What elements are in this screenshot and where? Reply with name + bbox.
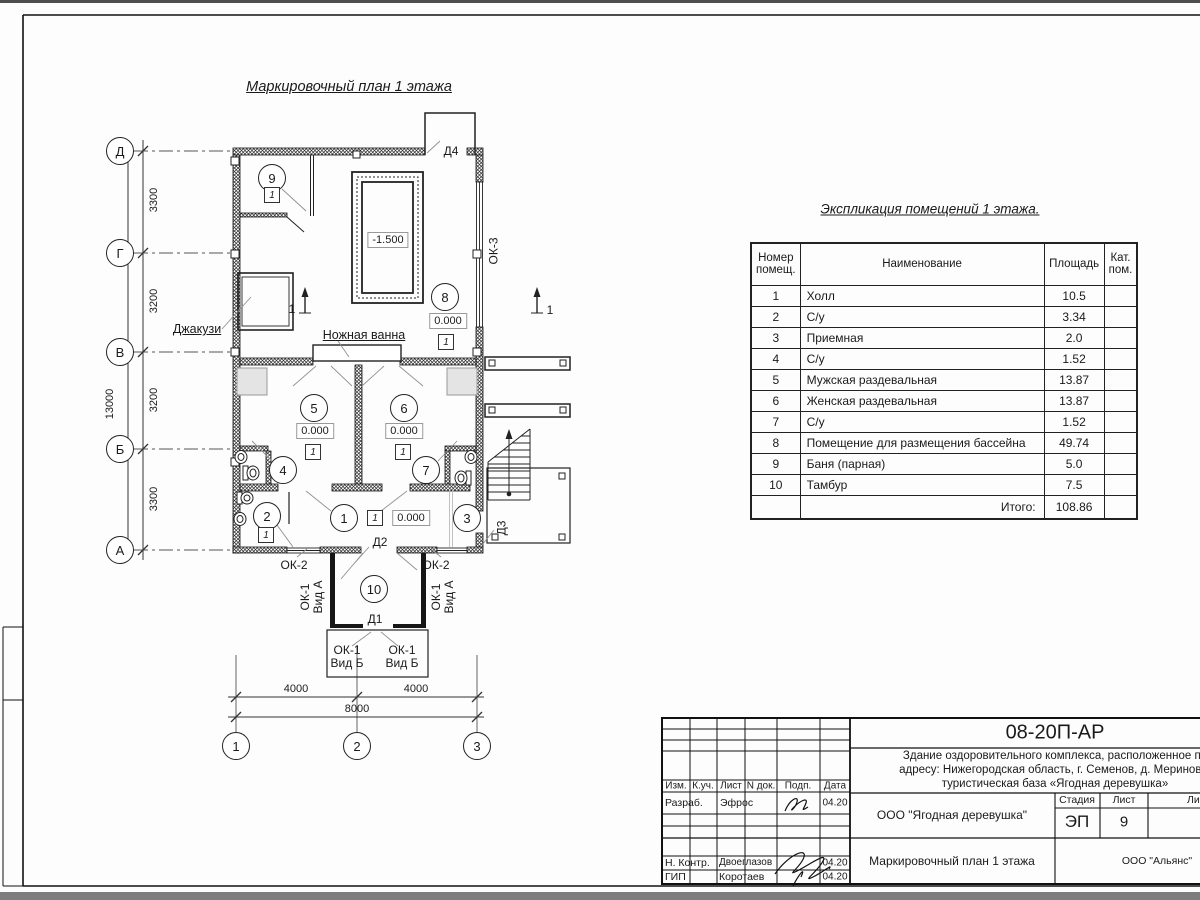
org-name: ООО "Ягодная деревушка": [877, 808, 1027, 822]
window-ok3-label: ОК-3: [488, 238, 501, 265]
room-circle-10: 10: [360, 575, 388, 603]
table-row: 10Тамбур7.5: [751, 474, 1137, 495]
axis-col-2: 2: [343, 732, 371, 760]
col-podp: Подп.: [785, 781, 812, 792]
elevation-zero: 0.000: [385, 423, 423, 439]
elevation-zero: 0.000: [392, 510, 430, 526]
role-razrab: Разраб.: [665, 797, 703, 809]
section-mark-1-left: 1: [289, 302, 296, 316]
axis-grid: [134, 151, 477, 733]
total-value: 108.86: [1044, 495, 1104, 519]
door-d4-label: Д4: [444, 144, 459, 158]
room-circle-3: 3: [453, 504, 481, 532]
jacuzzi-label: Джакузи: [173, 322, 221, 336]
date-nkontr: 04.20: [822, 858, 847, 869]
type-marker: 1: [258, 527, 274, 543]
room-circle-2: 2: [253, 502, 281, 530]
table-row: 3Приемная2.0: [751, 327, 1137, 348]
explication-title: Экспликация помещений 1 этажа.: [821, 202, 1040, 217]
col-izm: Изм.: [665, 781, 686, 792]
role-gip: ГИП: [665, 871, 686, 883]
role-nkontr: Н. Контр.: [665, 857, 710, 869]
col-header-name: Наименование: [800, 243, 1044, 285]
type-marker: 1: [395, 444, 411, 460]
sheet-number: 9: [1120, 814, 1128, 831]
viewA-text: Вид А: [443, 580, 456, 613]
name-dvoeglazov: Двоеглазов: [719, 857, 772, 868]
room-circle-6: 6: [390, 394, 418, 422]
ramp-rails: [485, 357, 570, 417]
table-row: 7С/у1.52: [751, 411, 1137, 432]
axis-row-G: Г: [106, 239, 134, 267]
plan-title: Маркировочный план 1 этажа: [246, 79, 452, 95]
axis-row-V: В: [106, 338, 134, 366]
col-data: Дата: [824, 781, 846, 792]
viewB-text: Вид Б: [331, 657, 364, 670]
room-circle-7: 7: [412, 456, 440, 484]
section-mark-1-right: 1: [547, 303, 554, 317]
window-ok1-viewB-left-label: ОК-1 Вид Б: [331, 644, 364, 670]
drawing-title: Маркировочный план 1 этажа: [869, 854, 1035, 868]
col-header-num: Номер помещ.: [751, 243, 800, 285]
elevation-zero: 0.000: [429, 313, 467, 329]
elevation-zero: 0.000: [296, 423, 334, 439]
axis-row-A: А: [106, 536, 134, 564]
dim-3200-b: 3200: [148, 388, 160, 412]
dim-3300-top: 3300: [148, 188, 160, 212]
room-circle-5: 5: [300, 394, 328, 422]
date-razrab: 04.20: [822, 798, 847, 809]
stage-label: Стадия: [1059, 794, 1095, 806]
col-ndok: N док.: [747, 781, 776, 792]
door-d3-label: Д3: [496, 521, 509, 536]
table-row: 6Женская раздевальная13.87: [751, 390, 1137, 411]
col-kuch: К.уч.: [692, 781, 714, 792]
window-ok2-left-label: ОК-2: [281, 558, 308, 572]
window-ok1-viewA-right-label: ОК-1 Вид А: [430, 580, 456, 613]
table-row: 5Мужская раздевальная13.87: [751, 369, 1137, 390]
total-label: Итого:: [800, 495, 1044, 519]
room-circle-8: 8: [431, 283, 459, 311]
jacuzzi: [238, 273, 293, 330]
col-header-area: Площадь: [1044, 243, 1104, 285]
stage-value: ЭП: [1065, 812, 1089, 832]
axis-col-1: 1: [222, 732, 250, 760]
type-marker: 1: [264, 187, 280, 203]
dim-3300-bottom: 3300: [148, 487, 160, 511]
table-total-row: Итого: 108.86: [751, 495, 1137, 519]
table-row: 4С/у1.52: [751, 348, 1137, 369]
col-list: Лист: [720, 781, 742, 792]
dim-4000-right: 4000: [404, 683, 428, 695]
axis-col-3: 3: [463, 732, 491, 760]
stairs: [488, 429, 530, 500]
window-ok1-viewB-right-label: ОК-1 Вид Б: [386, 644, 419, 670]
contractor-name: ООО "Альянс": [1122, 855, 1192, 867]
table-row: 2С/у3.34: [751, 306, 1137, 327]
window-ok1-viewA-left-label: ОК-1 Вид А: [299, 580, 325, 613]
table-row: 1Холл10.5: [751, 285, 1137, 306]
drawing-sheet: Маркировочный план 1 этажа Д Г В Б А 1 2…: [0, 0, 1200, 900]
explication-table: Номер помещ. Наименование Площадь Кат. п…: [750, 242, 1138, 520]
name-efros: Эфрос: [720, 797, 753, 809]
viewA-text: Вид А: [312, 580, 325, 613]
dim-4000-left: 4000: [284, 683, 308, 695]
door-d1-label: Д1: [368, 612, 383, 626]
project-desc-line3: туристическая база «Ягодная деревушка»: [942, 778, 1168, 790]
dim-3200-a: 3200: [148, 289, 160, 313]
axis-row-B: Б: [106, 435, 134, 463]
sheets-label: Листов: [1187, 794, 1200, 806]
type-marker: 1: [305, 444, 321, 460]
sheet-label: Лист: [1113, 794, 1136, 806]
document-code: 08-20П-АР: [1006, 722, 1105, 745]
viewB-text: Вид Б: [386, 657, 419, 670]
table-row: 8Помещение для размещения бассейна49.74: [751, 432, 1137, 453]
dim-8000: 8000: [345, 703, 369, 715]
type-marker: 1: [438, 334, 454, 350]
name-korotaev: Коротаев: [719, 871, 764, 883]
axis-row-D: Д: [106, 137, 134, 165]
foot-bath-label: Ножная ванна: [323, 328, 406, 342]
type-marker: 1: [367, 510, 383, 526]
door-d2-label: Д2: [373, 535, 388, 549]
room-circle-1: 1: [330, 504, 358, 532]
col-header-cat: Кат. пом.: [1104, 243, 1137, 285]
room-circle-4: 4: [269, 456, 297, 484]
date-gip: 04.20: [822, 872, 847, 883]
section-marks: [299, 287, 543, 313]
table-row: 9Баня (парная)5.0: [751, 453, 1137, 474]
window-ok2-right-label: ОК-2: [423, 558, 450, 572]
project-desc-line2: адресу: Нижегородская область, г. Семено…: [899, 764, 1200, 776]
foot-bath: [313, 345, 401, 361]
dim-13000: 13000: [104, 389, 116, 420]
pool-elevation: -1.500: [367, 232, 408, 248]
project-desc-line1: Здание оздоровительного комплекса, распо…: [903, 750, 1200, 762]
